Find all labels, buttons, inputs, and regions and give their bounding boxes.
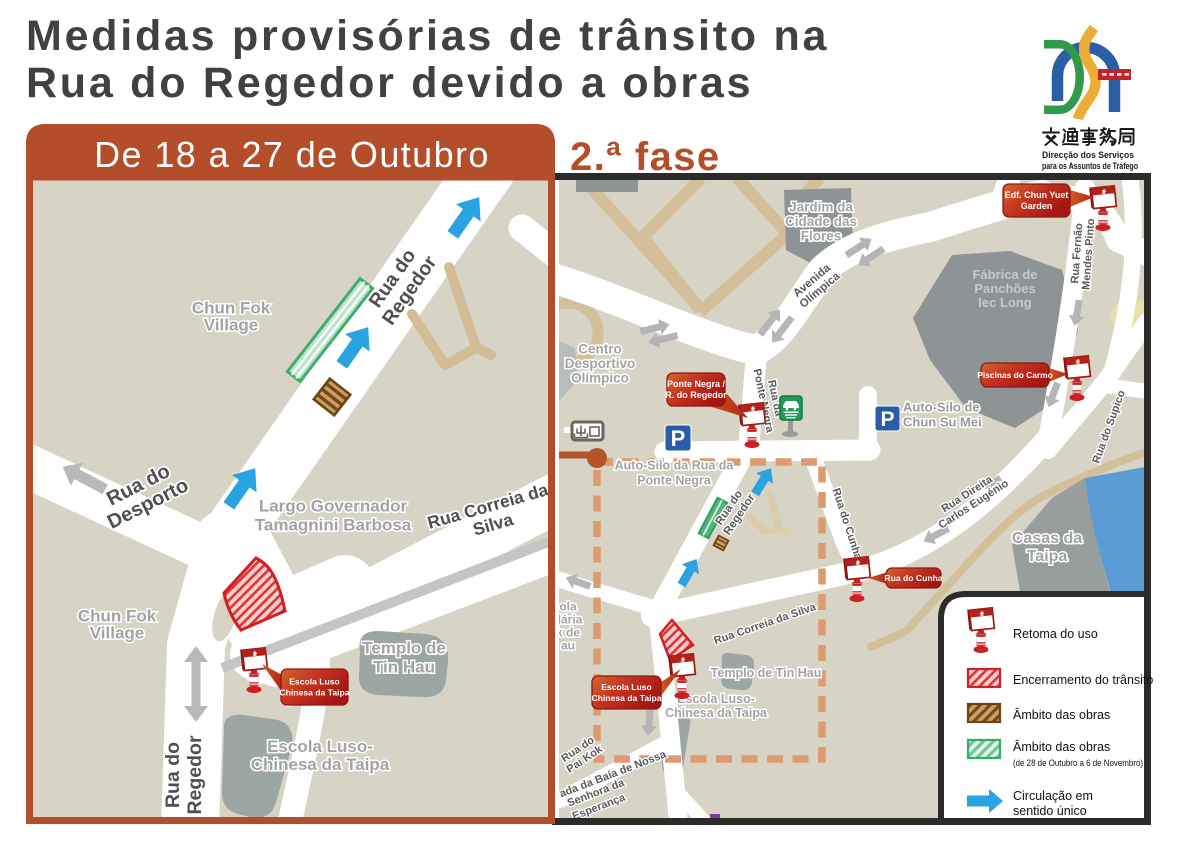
svg-text:Chinesa da Taipa: Chinesa da Taipa <box>665 706 768 720</box>
svg-text:Âmbito das obras: Âmbito das obras <box>1013 739 1110 754</box>
svg-text:Casas da: Casas da <box>1012 530 1082 547</box>
svg-text:Circulação em: Circulação em <box>1013 789 1093 803</box>
svg-text:Auto-Silo da Rua da: Auto-Silo da Rua da <box>615 459 735 473</box>
svg-text:Escola Luso-: Escola Luso- <box>267 737 373 756</box>
svg-text:sentido único: sentido único <box>1013 804 1087 818</box>
svg-text:Âmbito das obras: Âmbito das obras <box>1013 707 1110 722</box>
svg-text:Templo de: Templo de <box>362 639 446 658</box>
svg-text:Iec Long: Iec Long <box>978 295 1032 310</box>
svg-text:au: au <box>561 639 575 653</box>
svg-text:Taipa: Taipa <box>1027 548 1068 565</box>
svg-text:Templo de Tin Hau: Templo de Tin Hau <box>711 666 822 680</box>
svg-text:Regedor: Regedor <box>184 735 206 815</box>
svg-text:Fábrica de: Fábrica de <box>972 267 1037 282</box>
svg-text:P: P <box>671 426 686 451</box>
svg-text:Edf. Chun Yuet: Edf. Chun Yuet <box>1005 190 1069 200</box>
svg-text:Jardim da: Jardim da <box>789 200 853 215</box>
svg-text:Village: Village <box>204 316 259 335</box>
svg-text:Auto-Silo de: Auto-Silo de <box>903 400 980 415</box>
svg-text:Panchões: Panchões <box>974 281 1035 296</box>
svg-text:Chinesa da Taipa: Chinesa da Taipa <box>251 755 390 774</box>
svg-text:Chinesa da Taipa: Chinesa da Taipa <box>279 688 349 698</box>
svg-text:Largo Governador: Largo Governador <box>259 497 408 516</box>
svg-text:2.ª fase: 2.ª fase <box>570 135 721 179</box>
svg-text:Retoma do uso: Retoma do uso <box>1013 627 1098 641</box>
svg-text:Tin Hau: Tin Hau <box>373 658 435 677</box>
svg-text:P: P <box>880 408 894 431</box>
svg-text:Desportivo: Desportivo <box>565 356 636 371</box>
svg-text:ola: ola <box>559 600 577 614</box>
svg-text:De 18 a 27 de Outubro: De 18 a 27 de Outubro <box>94 134 490 175</box>
svg-text:R. do Regedor: R. do Regedor <box>665 390 727 400</box>
svg-text:Medidas provisórias de trânsit: Medidas provisórias de trânsito na <box>26 12 829 60</box>
svg-text:Cidade das: Cidade das <box>785 214 857 229</box>
svg-text:Encerramento do trânsito: Encerramento do trânsito <box>1013 673 1153 687</box>
svg-text:Chinesa da Taipa: Chinesa da Taipa <box>591 693 661 703</box>
svg-text:Tamagnini Barbosa: Tamagnini Barbosa <box>255 516 412 535</box>
svg-text:Village: Village <box>90 624 145 643</box>
svg-text:Chun Su Mei: Chun Su Mei <box>903 415 982 430</box>
svg-text:Direcção dos Serviços: Direcção dos Serviços <box>1042 150 1134 160</box>
svg-text:(de 28 de Outubro a 6 de Novem: (de 28 de Outubro a 6 de Novembro) <box>1013 758 1143 769</box>
svg-text:k de: k de <box>556 626 580 640</box>
svg-text:Flores: Flores <box>801 229 842 244</box>
svg-text:Rua do Cunha: Rua do Cunha <box>884 573 942 583</box>
svg-text:Garden: Garden <box>1021 201 1053 211</box>
svg-text:Ponte Negra /: Ponte Negra / <box>667 379 726 389</box>
svg-text:Rua do Regedor devido a obras: Rua do Regedor devido a obras <box>26 59 753 107</box>
svg-text:Olímpico: Olímpico <box>571 371 629 386</box>
svg-text:Rua do: Rua do <box>162 742 184 808</box>
svg-text:Escola Luso: Escola Luso <box>289 677 340 687</box>
svg-text:para os Assuntos de Tráfego: para os Assuntos de Tráfego <box>1042 161 1138 171</box>
svg-text:Escola Luso: Escola Luso <box>601 682 652 692</box>
svg-text:Piscinas do Carmo: Piscinas do Carmo <box>977 370 1052 380</box>
svg-text:Ponte Negra: Ponte Negra <box>637 474 712 488</box>
svg-text:Centro: Centro <box>578 342 622 357</box>
